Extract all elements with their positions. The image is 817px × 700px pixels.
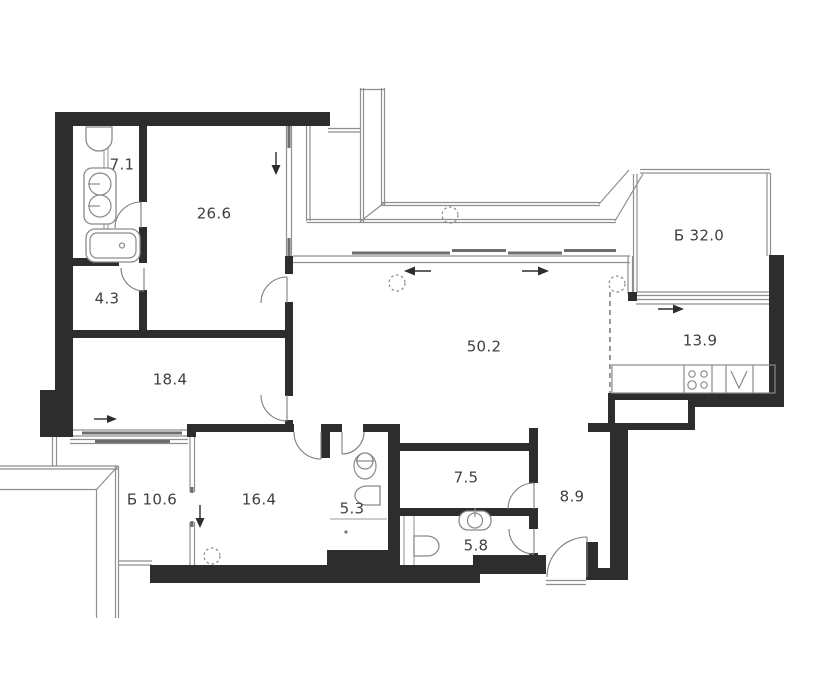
room-label-wc-small: 5.3 (340, 500, 365, 518)
door-arc-wc-small (342, 432, 364, 454)
door-arcs (115, 202, 587, 577)
toilet-icon (414, 536, 439, 556)
room-label-kitchen: 13.9 (683, 332, 718, 350)
room-label-bedroom-top: 26.6 (197, 205, 232, 223)
downlight-marker (442, 207, 458, 223)
room-label-bedroom-left: 18.4 (153, 371, 188, 389)
washbasin-icon (354, 453, 376, 479)
walls (40, 112, 784, 583)
entry-door-arc (547, 537, 587, 577)
washbasin-icon (459, 508, 491, 530)
patio-void-outline (307, 88, 644, 223)
door-arc-bedroom-top (261, 277, 287, 303)
duct-shaft (615, 400, 688, 423)
door-arc-bedroom-bottom (294, 432, 321, 459)
door-arc-bedroom-left (261, 395, 287, 421)
room-label-storage: 7.5 (454, 469, 479, 487)
stove-icon (688, 371, 707, 389)
door-arc-storage (508, 483, 534, 509)
room-label-balcony-left: Б 10.6 (127, 491, 177, 509)
room-labels: 7.126.64.318.4Б 10.616.45.350.27.55.88.9… (95, 156, 725, 555)
room-label-terrace-right: Б 32.0 (674, 227, 724, 245)
floor-plan-svg: 7.126.64.318.4Б 10.616.45.350.27.55.88.9… (0, 0, 817, 700)
room-label-bedroom-bottom: 16.4 (242, 491, 277, 509)
room-label-bathroom-top: 7.1 (110, 156, 135, 174)
room-label-closet-hall: 4.3 (95, 290, 120, 308)
door-arc-wc-guest (509, 529, 534, 554)
room-label-wc-guest: 5.8 (464, 537, 489, 555)
room-label-entry-hall: 8.9 (560, 488, 585, 506)
shower-drain (344, 530, 347, 533)
toilet-icon (86, 127, 112, 151)
fixtures (84, 127, 775, 556)
room-label-living-room: 50.2 (467, 338, 502, 356)
double-washbasin-icon (84, 168, 116, 224)
neighbor-balcony-outline (0, 437, 119, 618)
floor-plan-page: 7.126.64.318.4Б 10.616.45.350.27.55.88.9… (0, 0, 817, 700)
bathtub-icon (86, 229, 140, 262)
door-arc-bathroom (115, 202, 141, 228)
door-arc-closet (121, 268, 144, 291)
kitchen-sink-icon (731, 371, 747, 388)
